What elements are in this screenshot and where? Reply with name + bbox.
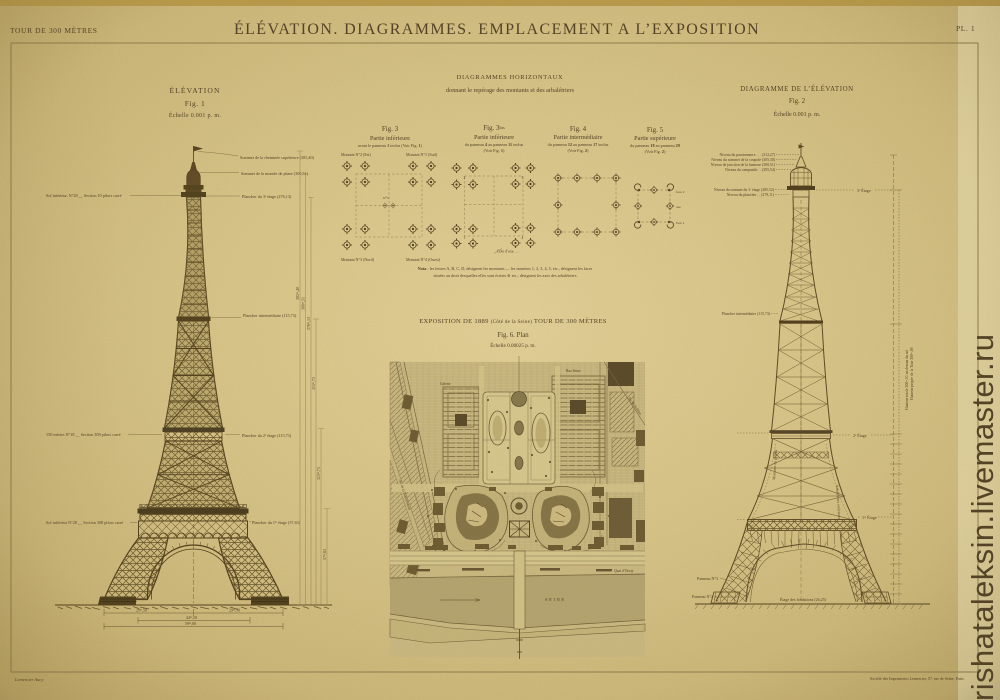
svg-text:rishataleksin.livemaster.ru: rishataleksin.livemaster.ru [965, 334, 1000, 700]
